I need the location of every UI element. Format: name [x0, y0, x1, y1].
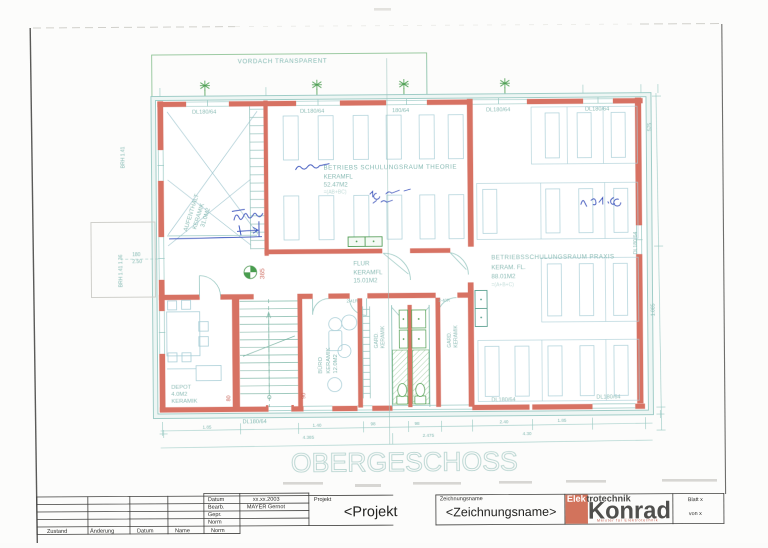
svg-text:DEPOT: DEPOT — [171, 385, 191, 391]
svg-text:15.01M2: 15.01M2 — [353, 277, 378, 284]
svg-text:BETRIEBSSCHULUNGSRAUM PRAXIS: BETRIEBSSCHULUNGSRAUM PRAXIS — [491, 253, 614, 261]
svg-text:MAYER Gernot: MAYER Gernot — [247, 504, 286, 510]
svg-text:DL180/64: DL180/64 — [491, 397, 515, 403]
svg-text:4.385: 4.385 — [303, 435, 315, 440]
svg-text:2-40R: 2-40R — [439, 298, 450, 303]
svg-text:<Zeichnungsname>: <Zeichnungsname> — [446, 505, 557, 520]
svg-text:4.0M2: 4.0M2 — [171, 392, 187, 398]
svg-text:=(AB+BC): =(AB+BC) — [324, 190, 347, 196]
svg-text:Bearb.: Bearb. — [208, 505, 225, 511]
svg-text:DL180/64: DL180/64 — [300, 109, 324, 115]
svg-text:KERAM. FL.: KERAM. FL. — [491, 264, 526, 271]
svg-text:Norm: Norm — [208, 520, 222, 526]
svg-text:BETRIEBS SCHULUNGSRAUM THEORIE: BETRIEBS SCHULUNGSRAUM THEORIE — [323, 164, 457, 172]
svg-text:DL180/64: DL180/64 — [486, 107, 510, 113]
svg-text:Datum: Datum — [208, 497, 225, 503]
svg-text:2-41R: 2-41R — [347, 298, 358, 303]
svg-text:GARD.: GARD. — [374, 332, 380, 348]
svg-text:1.85: 1.85 — [557, 418, 566, 423]
svg-text:2.50: 2.50 — [132, 259, 142, 265]
svg-text:4.30: 4.30 — [523, 431, 532, 436]
svg-text:180: 180 — [132, 252, 141, 258]
svg-text:GARD.: GARD. — [447, 332, 453, 348]
svg-text:575: 575 — [647, 123, 653, 132]
svg-text:Gepr.: Gepr. — [208, 512, 222, 518]
svg-text:KERAMIK: KERAMIK — [326, 347, 332, 373]
svg-text:KERAMFL: KERAMFL — [353, 269, 383, 276]
svg-text:Norm: Norm — [211, 528, 225, 534]
svg-text:98: 98 — [415, 421, 421, 426]
svg-text:1.40: 1.40 — [313, 423, 322, 428]
svg-text:2.475: 2.475 — [423, 433, 435, 438]
svg-text:1.85: 1.85 — [203, 425, 212, 430]
svg-text:von x: von x — [689, 511, 702, 517]
svg-text:<Projekt: <Projekt — [344, 504, 398, 520]
svg-text:Elek: Elek — [567, 494, 587, 504]
svg-text:VORDACH TRANSPARENT: VORDACH TRANSPARENT — [238, 58, 328, 66]
svg-text:=(A+B+C): =(A+B+C) — [491, 282, 514, 288]
svg-text:180/64: 180/64 — [392, 108, 409, 114]
svg-text:DL180/64: DL180/64 — [192, 110, 216, 116]
svg-text:Name: Name — [175, 528, 190, 534]
svg-text:DL180/64: DL180/64 — [585, 106, 609, 112]
svg-text:KERAMFL: KERAMFL — [324, 173, 354, 180]
svg-text:365: 365 — [259, 268, 266, 279]
svg-text:98: 98 — [371, 421, 377, 426]
svg-text:2.40: 2.40 — [499, 419, 508, 424]
svg-text:OBERGESCHOSS: OBERGESCHOSS — [291, 446, 518, 478]
svg-text:Meister für Elektrotechnik: Meister für Elektrotechnik — [597, 518, 658, 522]
svg-text:12.0M2: 12.0M2 — [333, 354, 339, 373]
svg-text:Projekt: Projekt — [314, 497, 332, 503]
svg-text:Blatt x: Blatt x — [688, 497, 703, 503]
svg-text:FLUR: FLUR — [353, 260, 370, 267]
svg-text:DL180/64: DL180/64 — [242, 419, 266, 425]
svg-text:1.085: 1.085 — [651, 303, 657, 316]
svg-text:KERAMIK: KERAMIK — [171, 399, 197, 405]
svg-text:52.47M2: 52.47M2 — [324, 182, 349, 189]
svg-text:xx.xx.2003: xx.xx.2003 — [253, 497, 280, 503]
svg-text:Zustand: Zustand — [47, 529, 67, 535]
svg-text:80: 80 — [226, 395, 232, 401]
svg-text:Änderung: Änderung — [90, 528, 114, 535]
svg-text:88.01M2: 88.01M2 — [491, 273, 516, 280]
svg-text:BRH 1.41: BRH 1.41 — [120, 146, 126, 168]
svg-text:KERAMIK: KERAMIK — [380, 325, 386, 348]
svg-text:BÜRO: BÜRO — [317, 356, 324, 373]
svg-text:90: 90 — [301, 393, 307, 399]
svg-text:Datum: Datum — [137, 528, 154, 534]
svg-text:Zeichnungsname: Zeichnungsname — [440, 496, 483, 502]
svg-text:KERAMIK: KERAMIK — [453, 324, 459, 347]
